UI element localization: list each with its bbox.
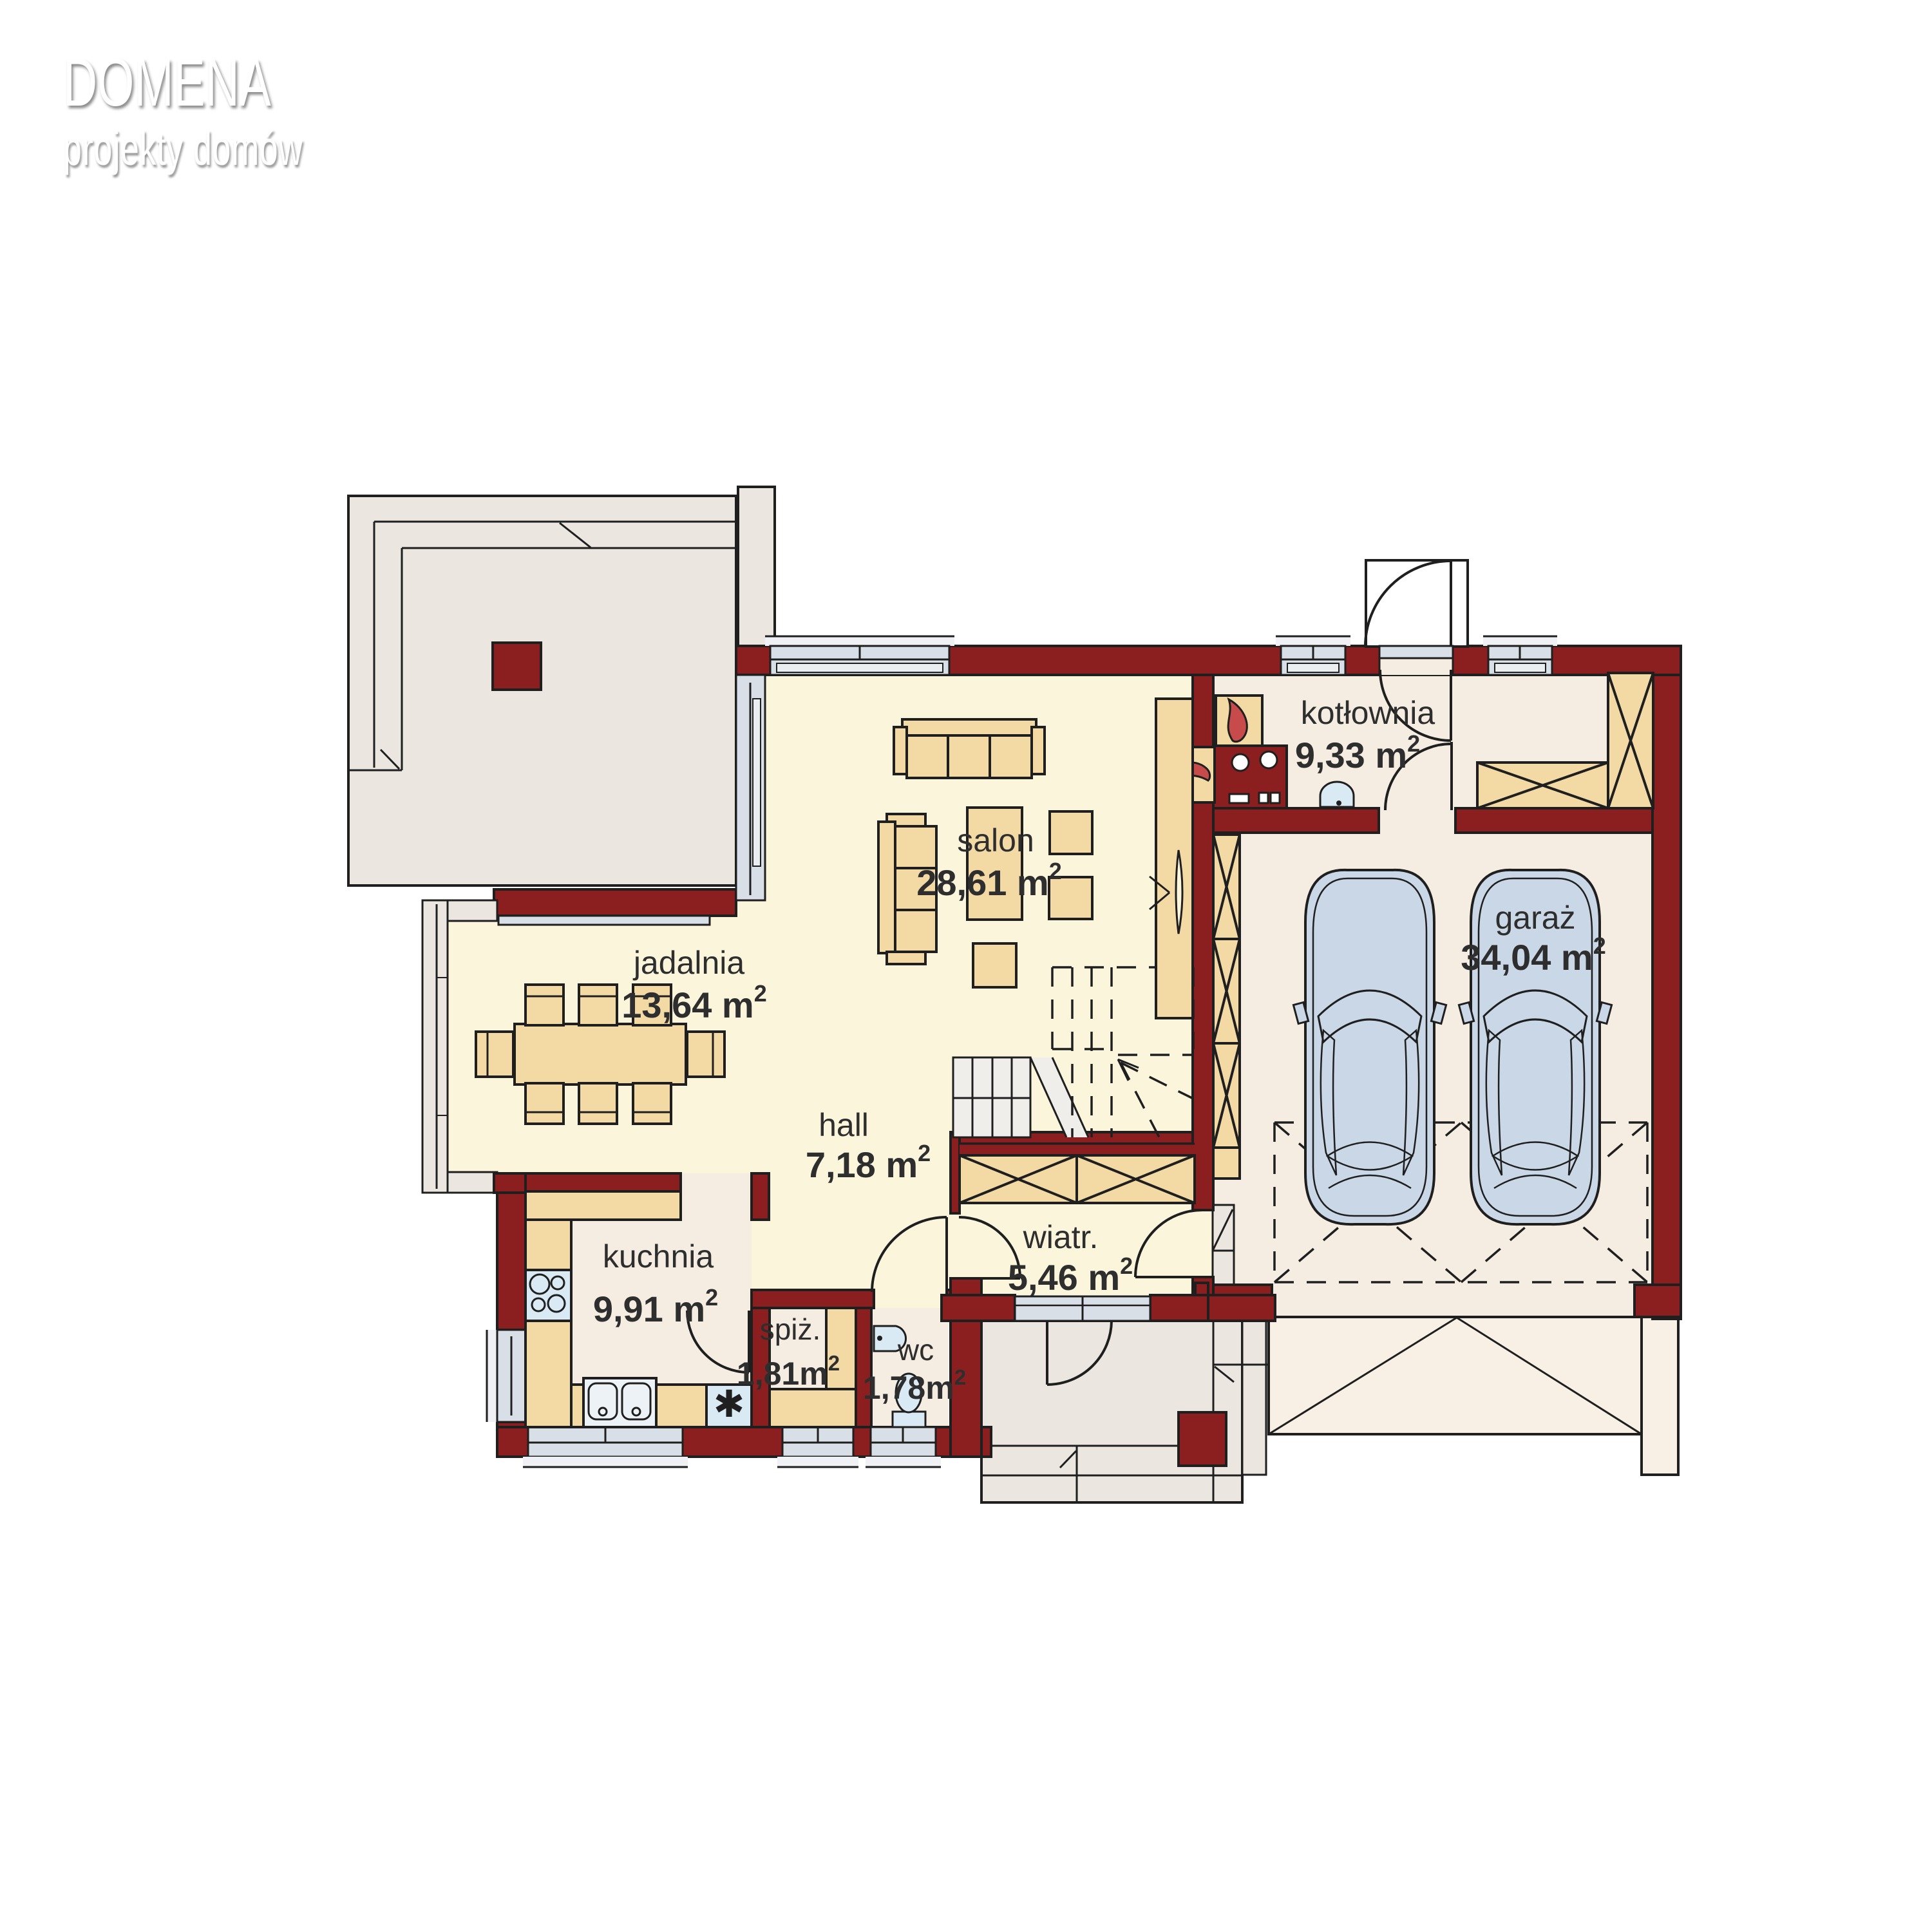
svg-text:wc: wc [897,1333,934,1367]
svg-text:hall: hall [819,1107,869,1143]
svg-text:1,78m2: 1,78m2 [863,1365,966,1406]
svg-text:kuchnia: kuchnia [603,1238,714,1274]
svg-text:13,64 m2: 13,64 m2 [621,980,767,1025]
svg-text:spiż.: spiż. [760,1312,821,1346]
svg-text:7,18 m2: 7,18 m2 [806,1140,931,1185]
svg-text:salon: salon [957,822,1034,858]
svg-text:kotłownia: kotłownia [1301,695,1435,731]
svg-text:jadalnia: jadalnia [632,945,745,981]
svg-text:5,46 m2: 5,46 m2 [1008,1253,1133,1298]
svg-text:9,33 m2: 9,33 m2 [1295,730,1420,775]
svg-text:1,81m2: 1,81m2 [737,1351,840,1392]
svg-text:garaż: garaż [1495,900,1575,936]
svg-text:wiatr.: wiatr. [1023,1219,1099,1255]
svg-text:28,61 m2: 28,61 m2 [916,858,1062,903]
svg-text:34,04 m2: 34,04 m2 [1461,933,1606,978]
svg-text:9,91 m2: 9,91 m2 [593,1284,718,1329]
